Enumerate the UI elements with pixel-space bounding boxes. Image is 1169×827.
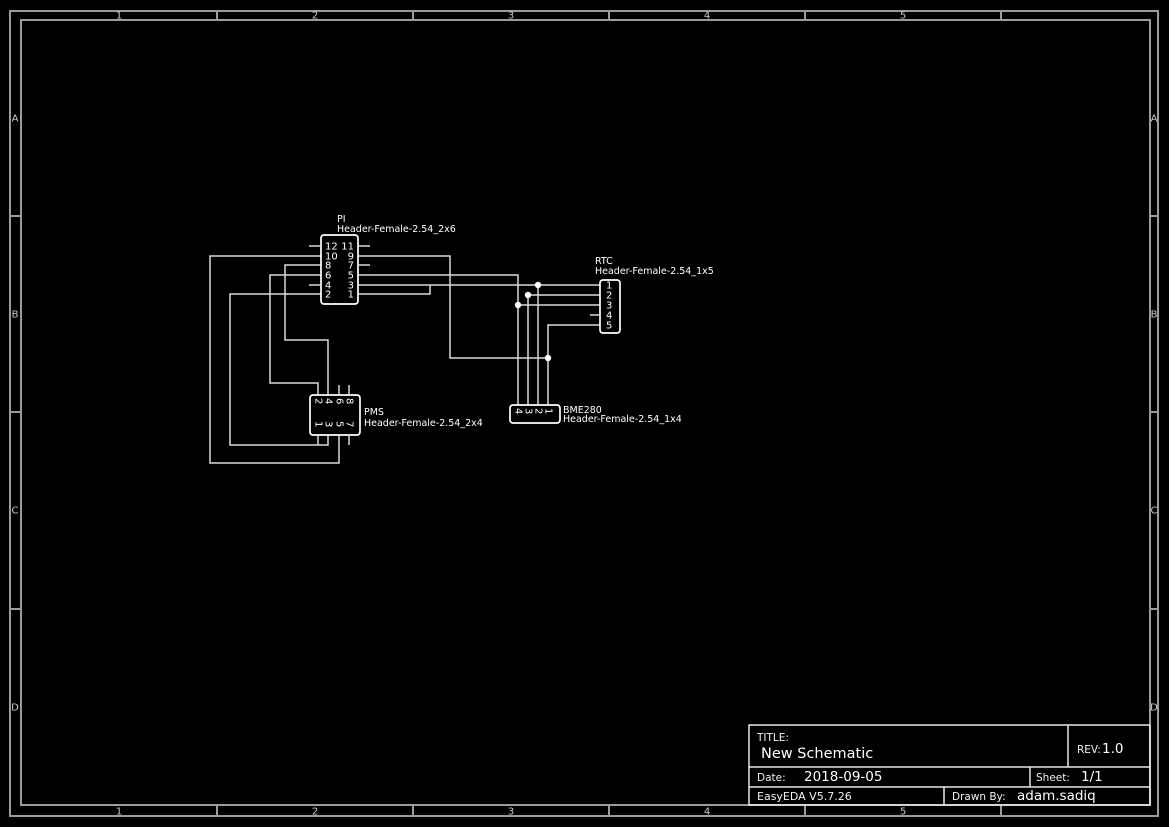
bme280-pin-number: 4 [513, 408, 524, 414]
pms-pin-number: 5 [334, 421, 345, 427]
row-label-left: D [11, 703, 19, 714]
column-label-bottom: 5 [900, 807, 906, 818]
component-pms[interactable]: PMS Header-Female-2.54_2x4 2 4 6 8 1 3 5… [310, 385, 483, 445]
column-label-bottom: 2 [312, 807, 318, 818]
rev-label: REV: [1077, 744, 1101, 756]
junction-dot[interactable] [535, 282, 541, 288]
row-label-left: B [12, 310, 19, 321]
junction-dot[interactable] [515, 302, 521, 308]
sheet-value[interactable]: 1/1 [1081, 769, 1103, 785]
rtc-footprint-label[interactable]: Header-Female-2.54_1x5 [595, 266, 714, 277]
row-label-left: C [12, 506, 19, 517]
sheet-title[interactable]: New Schematic [761, 746, 873, 762]
column-label-top: 3 [508, 11, 514, 22]
column-label-top: 5 [900, 11, 906, 22]
component-bme280[interactable]: BME280 Header-Female-2.54_1x4 4 3 2 1 [510, 405, 682, 425]
component-rtc[interactable]: RTC Header-Female-2.54_1x5 1 2 3 4 5 [590, 256, 714, 333]
component-pi[interactable]: PI Header-Female-2.54_2x6 12 10 8 6 4 2 … [309, 214, 456, 304]
sheet-label: Sheet: [1036, 772, 1070, 784]
row-label-right: A [1151, 114, 1158, 125]
wire-pi6-pms2[interactable] [270, 275, 321, 395]
drawn-by-label: Drawn By: [952, 791, 1006, 803]
row-label-right: C [1151, 506, 1158, 517]
date-value[interactable]: 2018-09-05 [804, 769, 882, 785]
rev-value[interactable]: 1.0 [1102, 741, 1123, 757]
title-block[interactable]: TITLE: New Schematic REV: 1.0 Date: 2018… [749, 725, 1150, 805]
rtc-pin-number: 5 [606, 321, 612, 332]
bme280-pin-number: 2 [533, 408, 544, 414]
pms-pin-number: 3 [323, 421, 334, 427]
software-version: EasyEDA V5.7.26 [757, 790, 852, 803]
column-label-bottom: 3 [508, 807, 514, 818]
wire-pi1-jog[interactable] [358, 285, 430, 294]
row-label-right: B [1151, 310, 1158, 321]
pi-footprint-label[interactable]: Header-Female-2.54_2x6 [337, 224, 456, 235]
pms-pin-number: 6 [334, 398, 345, 404]
junction-dots [515, 282, 551, 361]
pms-pin-number: 1 [313, 421, 324, 427]
pms-pin-number: 4 [323, 398, 334, 404]
row-label-right: D [1150, 703, 1158, 714]
pms-pin-number: 7 [344, 421, 355, 427]
column-label-bottom: 4 [704, 807, 710, 818]
column-label-top: 1 [116, 11, 122, 22]
bme280-footprint-label[interactable]: Header-Female-2.54_1x4 [563, 414, 682, 425]
date-label: Date: [757, 772, 786, 784]
title-label: TITLE: [756, 732, 789, 744]
wire-rtc2-bme3[interactable] [528, 295, 600, 405]
drawn-by-value[interactable]: adam.sadiq [1017, 788, 1096, 804]
wire-rtc5-bme1[interactable] [548, 325, 600, 405]
wires [210, 256, 600, 463]
schematic-canvas[interactable]: 1 2 3 4 5 1 2 3 4 5 A B C D A B C D TITL… [0, 0, 1169, 827]
pms-ref-label[interactable]: PMS [364, 407, 384, 418]
pms-pin-number: 2 [313, 398, 324, 404]
column-label-top: 4 [704, 11, 710, 22]
junction-dot[interactable] [525, 292, 531, 298]
column-label-top: 2 [312, 11, 318, 22]
pi-pin-number: 1 [348, 290, 354, 301]
row-label-left: A [12, 114, 19, 125]
pi-pin-number: 2 [325, 290, 331, 301]
column-label-bottom: 1 [116, 807, 122, 818]
junction-dot[interactable] [545, 355, 551, 361]
bme280-pin-number: 3 [523, 408, 534, 414]
bme280-pin-number: 1 [543, 408, 554, 414]
pms-pin-number: 8 [344, 398, 355, 404]
pms-footprint-label[interactable]: Header-Female-2.54_2x4 [364, 418, 483, 429]
